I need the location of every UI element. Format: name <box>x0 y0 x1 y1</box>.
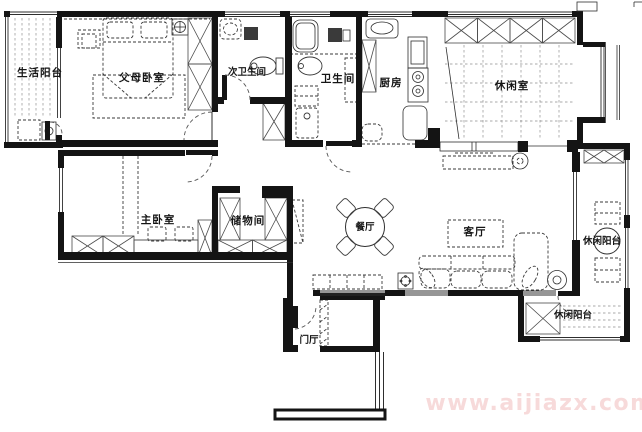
bathroom-door-arc <box>326 146 352 172</box>
watermark-text: www.aijiazx.com <box>425 391 642 416</box>
leisure-top-closet <box>445 18 575 43</box>
flower-table-icon <box>398 273 413 289</box>
sofa <box>416 233 548 290</box>
right-balcony-top-hatch <box>584 150 624 163</box>
leisure-room-floor-grid <box>445 45 575 140</box>
master-bedroom-door-arc <box>186 156 212 182</box>
room-label-leisure-room: 休闲室 <box>494 79 530 92</box>
floor-plan-svg: 生活阳台 父母卧室 次卫生间 卫生间 厨房 休闲室 主卧室 储物间 餐厅 客厅 … <box>0 0 642 432</box>
parents-bench <box>78 30 100 48</box>
parents-wardrobe <box>188 18 212 110</box>
room-label-storage-room: 储物间 <box>231 214 266 227</box>
master-bedroom-furniture <box>72 156 212 256</box>
parents-bedroom-door-arc <box>184 112 212 140</box>
secondary-bathroom-door-arc <box>225 75 250 100</box>
exterior-fragments <box>577 2 642 123</box>
entry-shaft-hatch <box>320 300 328 346</box>
entry-door-arc <box>295 306 316 329</box>
ceiling-fan-icon <box>172 19 188 35</box>
walls <box>4 11 630 352</box>
room-label-leisure-balcony-bottom: 休闲阳台 <box>553 309 593 321</box>
room-label-living-room: 客厅 <box>463 225 487 238</box>
room-label-bathroom: 卫生间 <box>321 72 356 85</box>
floor-plan: 生活阳台 父母卧室 次卫生间 卫生间 厨房 休闲室 主卧室 储物间 餐厅 客厅 … <box>0 0 642 432</box>
side-table <box>548 271 567 290</box>
plant-icon <box>512 153 528 169</box>
room-label-dining-room: 餐厅 <box>354 221 375 233</box>
room-label-parents-bedroom: 父母卧室 <box>118 71 165 84</box>
room-label-life-balcony: 生活阳台 <box>17 66 63 79</box>
room-label-leisure-balcony-right: 休闲阳台 <box>582 235 622 247</box>
room-label-secondary-bathroom: 次卫生间 <box>228 66 266 78</box>
room-label-kitchen: 厨房 <box>380 76 403 89</box>
room-label-entrance-hall: 门厅 <box>299 334 319 346</box>
exterior-stairs <box>275 352 385 419</box>
sideboard <box>313 275 382 289</box>
hall-closet <box>263 103 285 140</box>
room-label-master-bedroom: 主卧室 <box>141 213 176 226</box>
life-balcony-fixtures <box>18 120 56 140</box>
tv-cabinet <box>440 142 518 169</box>
